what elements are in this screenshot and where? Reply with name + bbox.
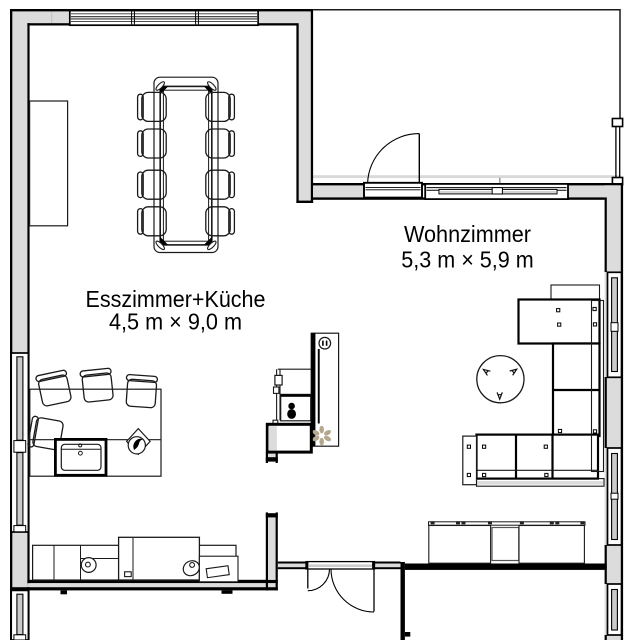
svg-text:Wohnzimmer: Wohnzimmer	[404, 221, 531, 247]
svg-text:5,3 m × 5,9 m: 5,3 m × 5,9 m	[401, 247, 533, 273]
svg-text:4,5 m × 9,0 m: 4,5 m × 9,0 m	[109, 309, 242, 335]
